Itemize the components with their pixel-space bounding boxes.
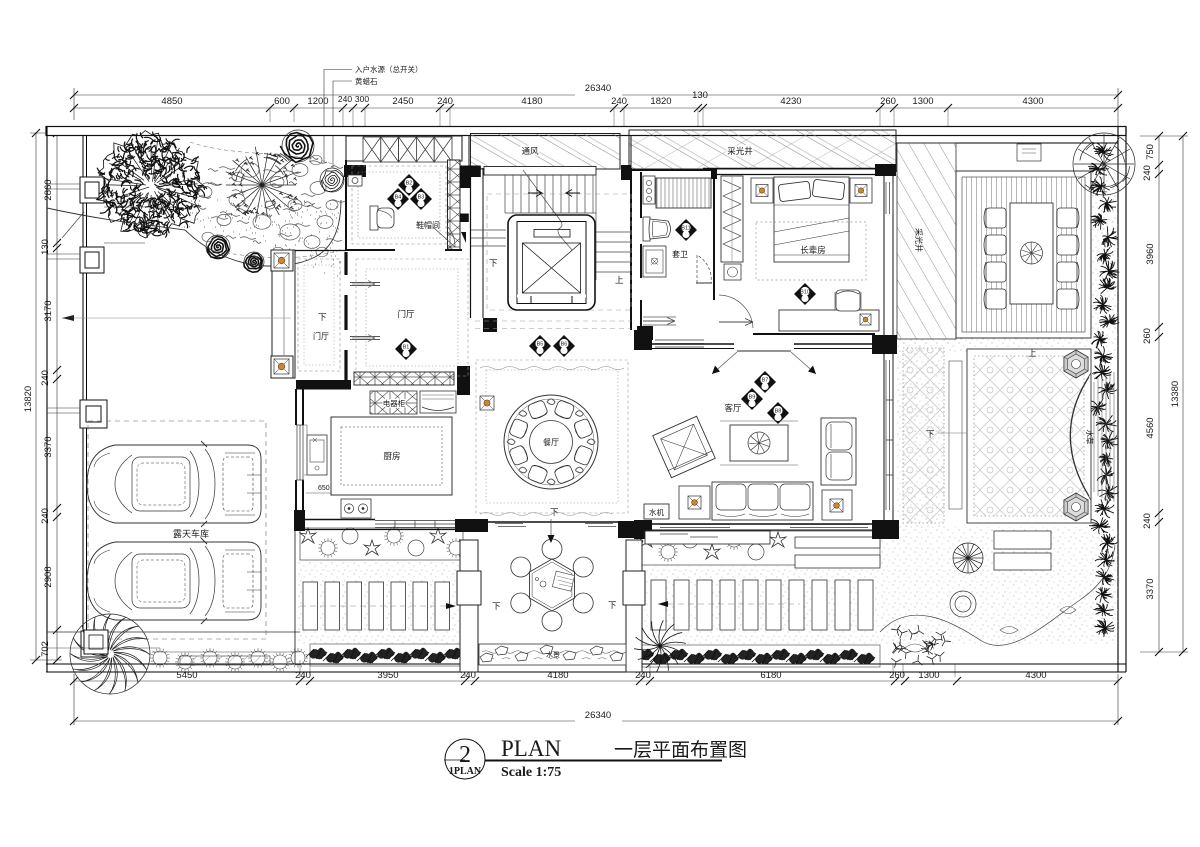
svg-text:露天车库: 露天车库 (173, 528, 209, 539)
svg-text:水草: 水草 (1085, 430, 1095, 446)
svg-text:B2: B2 (406, 181, 413, 187)
svg-text:13820: 13820 (23, 386, 34, 412)
svg-text:下: 下 (489, 258, 498, 268)
svg-text:B9: B9 (749, 395, 756, 401)
svg-text:1200: 1200 (307, 96, 328, 107)
svg-text:下: 下 (492, 601, 501, 611)
svg-text:餐厅: 餐厅 (543, 438, 559, 447)
svg-text:240: 240 (40, 508, 51, 524)
svg-text:130: 130 (692, 90, 708, 101)
svg-text:26340: 26340 (585, 710, 611, 721)
svg-text:下: 下 (550, 507, 559, 517)
svg-text:260: 260 (880, 96, 896, 107)
svg-text:门厅: 门厅 (397, 309, 415, 319)
svg-text:下: 下 (608, 600, 617, 610)
svg-text:2: 2 (459, 742, 471, 768)
svg-text:通风: 通风 (521, 146, 539, 156)
svg-text:3370: 3370 (1145, 578, 1156, 599)
svg-text:门厅: 门厅 (313, 331, 329, 341)
svg-text:下: 下 (926, 429, 935, 439)
svg-text:上: 上 (1028, 348, 1037, 358)
svg-text:入户水源（总开关）: 入户水源（总开关） (355, 64, 423, 74)
svg-text:240: 240 (611, 96, 627, 107)
svg-text:B6: B6 (561, 342, 568, 348)
svg-text:13380: 13380 (1170, 381, 1181, 407)
svg-text:300: 300 (355, 94, 369, 104)
svg-text:1300: 1300 (912, 96, 933, 107)
svg-text:4560: 4560 (1145, 417, 1156, 438)
svg-text:4180: 4180 (521, 96, 542, 107)
svg-text:厨房: 厨房 (383, 451, 400, 461)
svg-text:长辈房: 长辈房 (800, 245, 826, 255)
svg-text:4300: 4300 (1022, 96, 1043, 107)
svg-text:B1: B1 (403, 345, 410, 351)
svg-text:4850: 4850 (161, 96, 182, 107)
svg-text:1PLAN: 1PLAN (449, 766, 482, 777)
svg-text:套卫: 套卫 (672, 249, 688, 259)
svg-text:702: 702 (40, 641, 51, 657)
svg-text:Scale 1:75: Scale 1:75 (501, 765, 561, 780)
svg-text:采光井: 采光井 (727, 146, 753, 156)
svg-text:26340: 26340 (585, 83, 611, 94)
svg-text:240: 240 (1142, 513, 1153, 529)
svg-text:650: 650 (318, 485, 330, 492)
svg-text:B11: B11 (681, 226, 690, 232)
svg-text:750: 750 (1145, 144, 1156, 160)
svg-text:1820: 1820 (650, 96, 671, 107)
svg-text:B8: B8 (775, 409, 782, 415)
svg-text:240: 240 (40, 370, 51, 386)
svg-text:B3: B3 (418, 195, 425, 201)
svg-text:B10: B10 (800, 290, 810, 296)
svg-text:PLAN: PLAN (501, 736, 561, 761)
svg-text:电器柜: 电器柜 (383, 398, 406, 408)
svg-text:3960: 3960 (1145, 243, 1156, 264)
svg-text:一层平面布置图: 一层平面布置图 (614, 739, 747, 761)
svg-text:3370: 3370 (43, 436, 54, 457)
svg-text:B7: B7 (762, 378, 769, 384)
svg-text:下: 下 (318, 312, 327, 322)
svg-text:B4: B4 (395, 195, 402, 201)
svg-text:水景: 水景 (546, 650, 560, 659)
svg-text:水机: 水机 (649, 507, 664, 517)
svg-text:B5: B5 (537, 342, 544, 348)
svg-text:客厅: 客厅 (724, 403, 742, 413)
svg-text:上: 上 (615, 275, 624, 285)
svg-text:4230: 4230 (780, 96, 801, 107)
svg-text:240: 240 (338, 94, 352, 104)
svg-text:2860: 2860 (43, 179, 54, 200)
svg-text:黄蜡石: 黄蜡石 (355, 76, 378, 86)
svg-text:鞋帽间: 鞋帽间 (416, 220, 440, 230)
svg-text:130: 130 (40, 239, 51, 255)
svg-text:600: 600 (274, 96, 290, 107)
svg-text:240: 240 (1142, 165, 1153, 181)
svg-text:260: 260 (1142, 328, 1153, 344)
svg-text:3170: 3170 (43, 300, 54, 321)
svg-text:240: 240 (437, 96, 453, 107)
svg-text:采光井: 采光井 (914, 228, 924, 252)
svg-text:2908: 2908 (43, 566, 54, 587)
svg-text:2450: 2450 (392, 96, 413, 107)
